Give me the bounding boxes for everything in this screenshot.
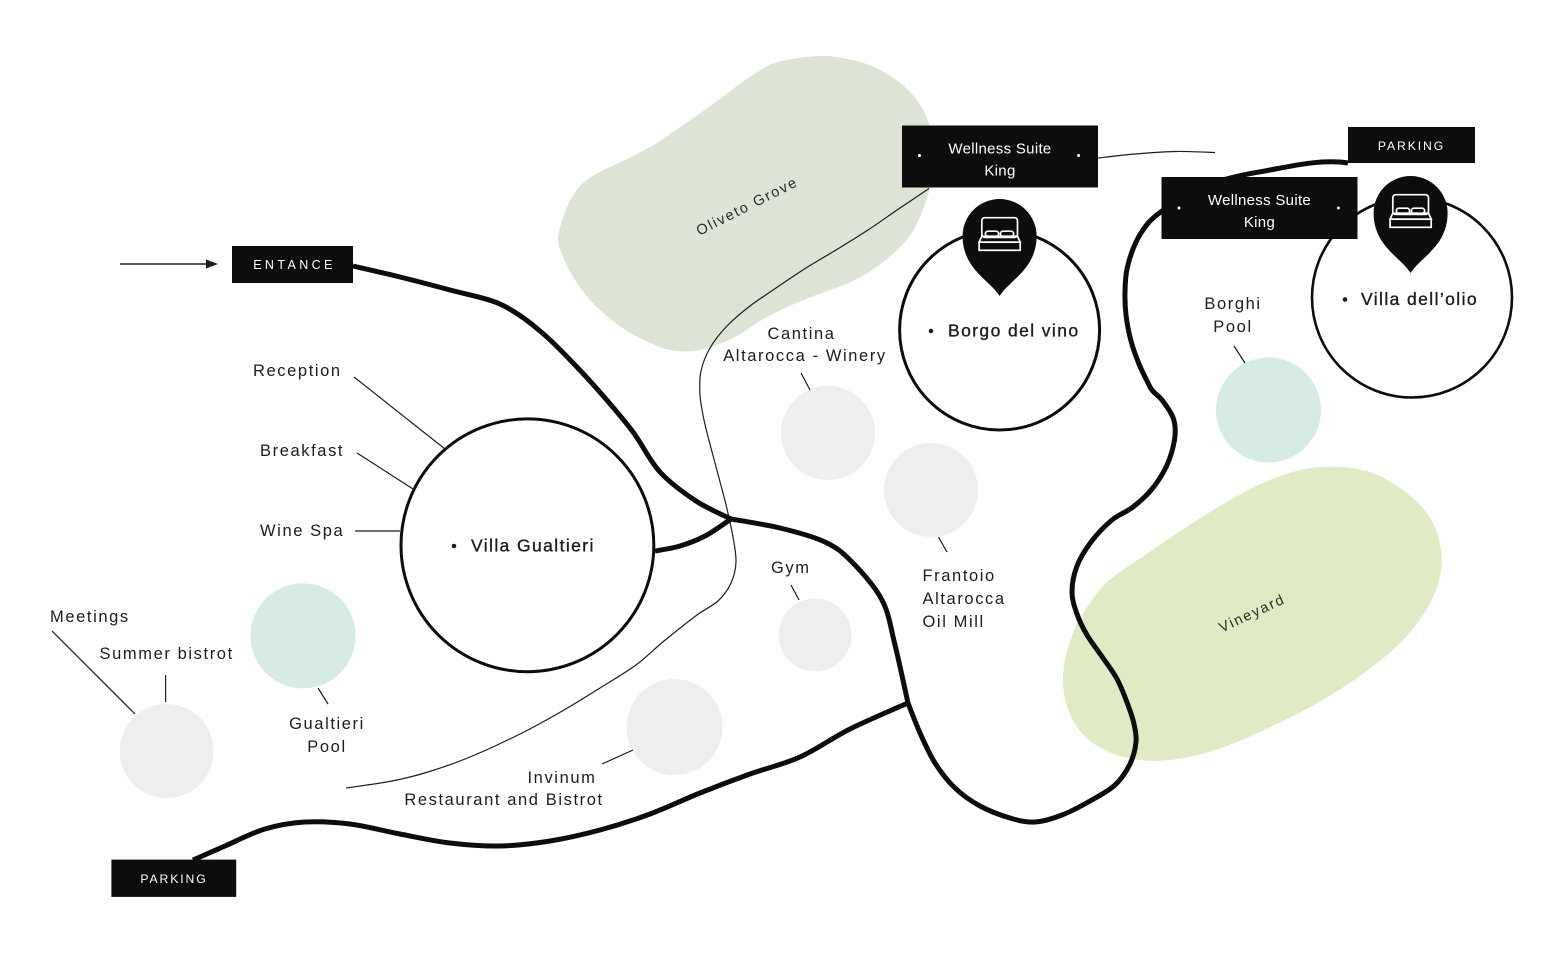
svg-text:Altarocca - Winery: Altarocca - Winery bbox=[723, 347, 887, 365]
svg-text:King: King bbox=[984, 163, 1015, 180]
svg-text:Borgo del vino: Borgo del vino bbox=[948, 321, 1079, 341]
svg-text:Borghi: Borghi bbox=[1204, 295, 1261, 313]
svg-text:Cantina: Cantina bbox=[767, 325, 835, 343]
svg-text:King: King bbox=[1244, 214, 1275, 231]
svg-text:Pool: Pool bbox=[1213, 318, 1252, 336]
svg-text:Reception: Reception bbox=[253, 362, 342, 380]
svg-text:Wellness Suite: Wellness Suite bbox=[948, 141, 1051, 158]
svg-text:Summer bistrot: Summer bistrot bbox=[100, 645, 234, 663]
svg-text:Wellness Suite: Wellness Suite bbox=[1208, 192, 1311, 209]
svg-text:Frantoio: Frantoio bbox=[923, 567, 996, 585]
svg-text:Breakfast: Breakfast bbox=[260, 442, 344, 460]
svg-text:Pool: Pool bbox=[307, 738, 346, 756]
svg-text:PARKING: PARKING bbox=[1378, 139, 1445, 153]
svg-text:Altarocca: Altarocca bbox=[923, 590, 1006, 608]
svg-text:Wine Spa: Wine Spa bbox=[260, 522, 344, 540]
svg-text:Villa dell’olio: Villa dell’olio bbox=[1361, 289, 1478, 309]
svg-text:Gym: Gym bbox=[771, 559, 811, 577]
svg-text:Gualtieri: Gualtieri bbox=[289, 715, 365, 733]
svg-text:PARKING: PARKING bbox=[140, 872, 207, 886]
svg-text:Restaurant and Bistrot: Restaurant and Bistrot bbox=[404, 791, 603, 809]
svg-text:Villa Gualtieri: Villa Gualtieri bbox=[471, 536, 595, 556]
svg-text:Invinum: Invinum bbox=[528, 769, 597, 787]
svg-text:Meetings: Meetings bbox=[50, 608, 130, 626]
svg-text:Oil Mill: Oil Mill bbox=[923, 613, 985, 631]
svg-text:ENTANCE: ENTANCE bbox=[253, 258, 336, 272]
